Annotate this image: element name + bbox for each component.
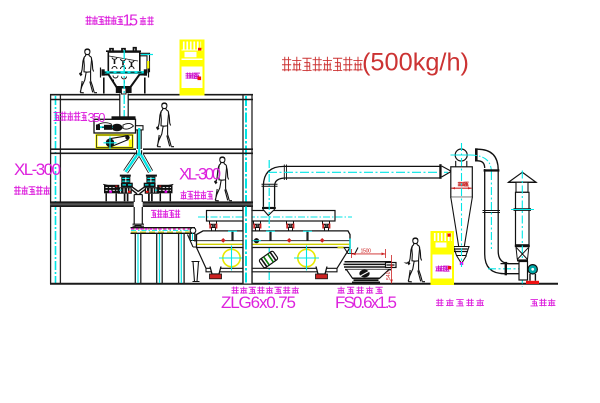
svg-text:1.5: 1.5 [123,13,139,30]
svg-text:540: 540 [386,271,392,280]
svg-text:350: 350 [88,110,106,125]
svg-text:XL-300: XL-300 [179,165,221,183]
svg-text:1500: 1500 [361,249,372,255]
svg-text:XL-300: XL-300 [14,160,61,179]
svg-text:(500kg/h): (500kg/h) [362,49,469,77]
svg-text:FS0.6x1.5: FS0.6x1.5 [335,293,397,312]
svg-text:ZLG6x0.75: ZLG6x0.75 [221,293,296,312]
